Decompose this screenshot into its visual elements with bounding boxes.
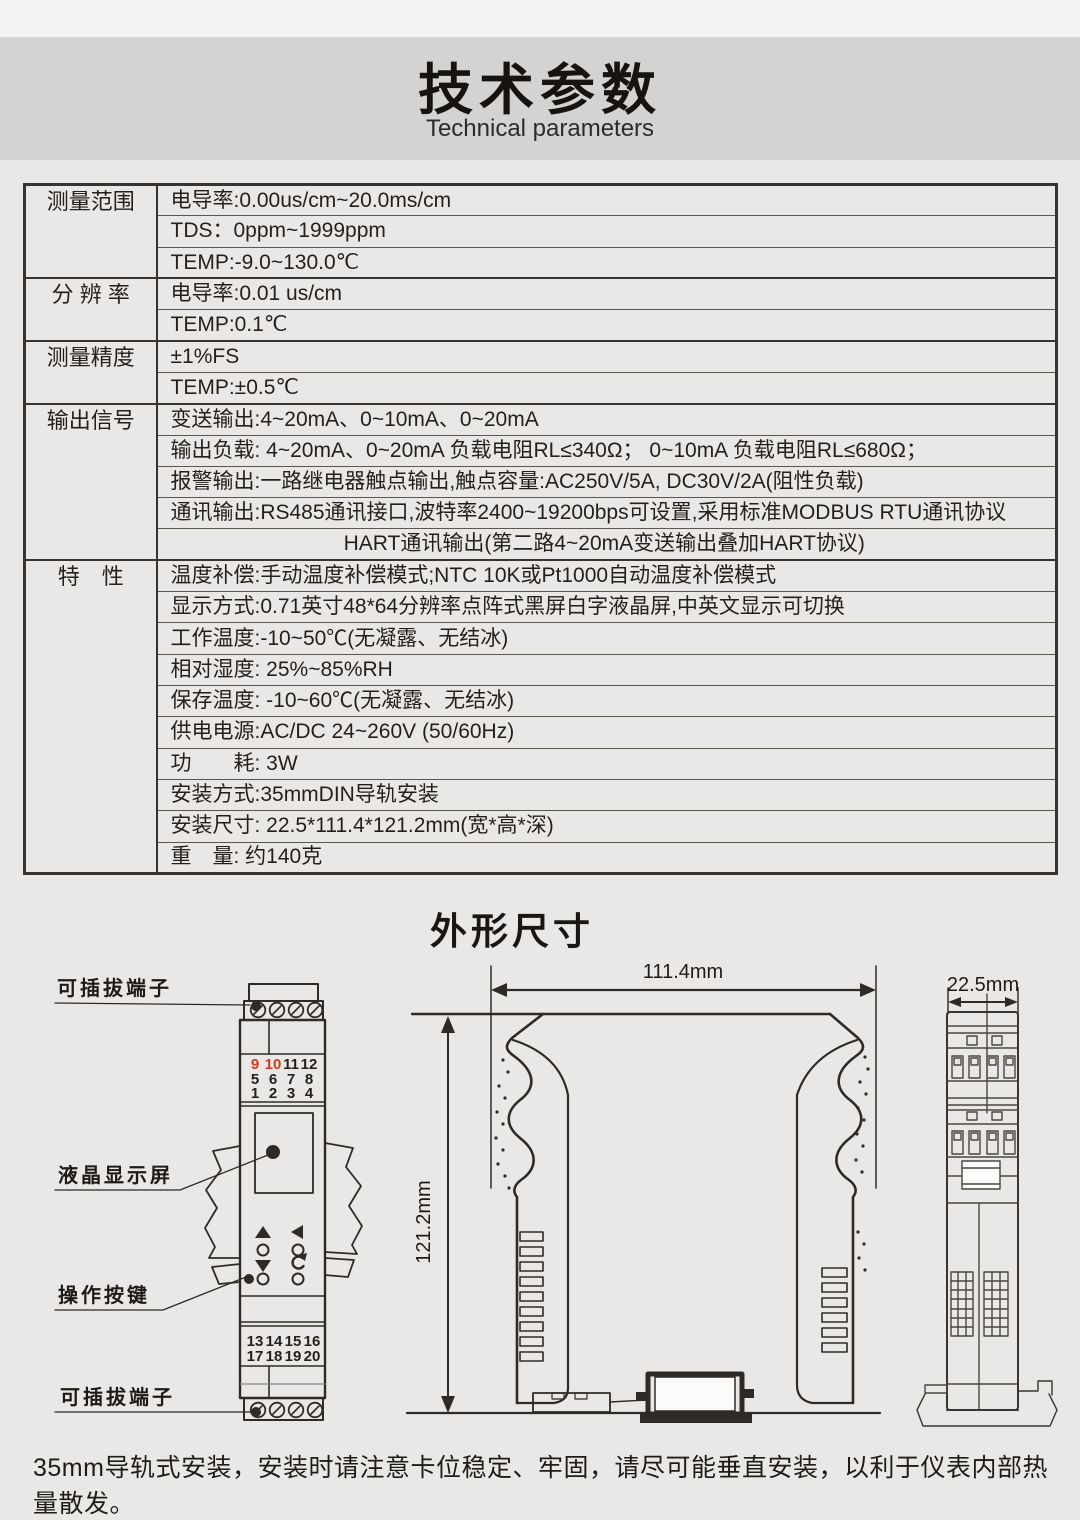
page: { "page": { "title": "技术参数", "subtitle":… — [0, 0, 1080, 1508]
spec-group-label: 测量范围 — [25, 185, 157, 279]
svg-text:3: 3 — [287, 1085, 295, 1102]
callout-terminal-top: 可插拔端子 — [57, 976, 172, 1000]
spec-row-value: 输出负载: 4~20mA、0~20mA 负载电阻RL≤340Ω； 0~10mA … — [157, 435, 1057, 466]
spec-group-label: 特 性 — [25, 560, 157, 873]
din-clip — [636, 1374, 754, 1423]
spec-group-label: 测量精度 — [25, 341, 157, 404]
left-arrow-icon — [291, 1225, 303, 1239]
operation-buttons — [244, 1225, 307, 1285]
spec-row-value: 电导率:0.01 us/cm — [157, 278, 1057, 309]
spec-row-value: 重 量: 约140克 — [157, 842, 1057, 873]
dim-height-label: 121.2mm — [413, 1180, 435, 1263]
spec-group-label: 输出信号 — [25, 404, 157, 561]
svg-text:19: 19 — [285, 1348, 302, 1365]
svg-text:4: 4 — [305, 1085, 314, 1102]
spec-row-value: HART通讯输出(第二路4~20mA变送输出叠加HART协议) — [157, 529, 1057, 560]
spec-row-value: TEMP:±0.5℃ — [157, 372, 1057, 403]
spec-row-value: 报警输出:一路继电器触点输出,触点容量:AC250V/5A, DC30V/2A(… — [157, 466, 1057, 497]
spec-row-value: 安装方式:35mmDIN导轨安装 — [157, 779, 1057, 810]
screw-terminal-icon — [251, 1003, 323, 1018]
terminal-numbers-bottom: 13 14 15 16 17 18 19 20 — [247, 1333, 321, 1365]
spec-row-value: 相对湿度: 25%~85%RH — [157, 654, 1057, 685]
spec-table: 测量范围 电导率:0.00us/cm~20.0ms/cm TDS：0ppm~19… — [23, 183, 1058, 875]
svg-text:17: 17 — [247, 1348, 264, 1365]
terminal-numbers-top: 9 10 11 12 5 6 7 8 1 2 3 4 — [251, 1056, 318, 1102]
up-arrow-icon — [255, 1226, 271, 1238]
top-strip — [0, 0, 1080, 37]
spec-row-value: 通讯输出:RS485通讯接口,波特率2400~19200bps可设置,采用标准M… — [157, 498, 1057, 529]
spec-row-value: ±1%FS — [157, 341, 1057, 372]
dimension-drawings: 9 10 11 12 5 6 7 8 1 2 3 4 — [0, 955, 1080, 1435]
screw-terminal-icon — [251, 1403, 323, 1418]
spec-row-value: TEMP:0.1℃ — [157, 310, 1057, 341]
svg-text:1: 1 — [251, 1085, 259, 1102]
spec-row-value: 工作温度:-10~50℃(无凝露、无结冰) — [157, 623, 1057, 654]
front-view-drawing: 9 10 11 12 5 6 7 8 1 2 3 4 — [55, 976, 362, 1420]
page-title: 技术参数 — [0, 45, 1080, 125]
spec-row-value: 电导率:0.00us/cm~20.0ms/cm — [157, 185, 1057, 216]
spec-row-value: 变送输出:4~20mA、0~10mA、0~20mA — [157, 404, 1057, 435]
dimensions-section-title: 外形尺寸 — [372, 901, 652, 955]
dotted-clip-marks — [854, 1055, 869, 1271]
dim-width-label: 111.4mm — [643, 961, 723, 983]
spec-row-value: 功 耗: 3W — [157, 748, 1057, 779]
mounting-note: 35mm导轨式安装，安装时请注意卡位稳定、牢固，请尽可能垂直安装，以利于仪表内部… — [33, 1448, 1063, 1520]
svg-text:2: 2 — [269, 1085, 277, 1102]
callout-lines — [55, 1003, 268, 1412]
down-arrow-icon — [255, 1260, 271, 1272]
svg-text:20: 20 — [304, 1348, 321, 1365]
dim-depth-label: 22.5mm — [947, 974, 1019, 996]
lcd-screen — [255, 1113, 313, 1193]
spec-row-value: 温度补偿:手动温度补偿模式;NTC 10K或Pt1000自动温度补偿模式 — [157, 560, 1057, 591]
top-view-drawing: 22.5mm — [917, 974, 1057, 1426]
spec-row-value: 安装尺寸: 22.5*111.4*121.2mm(宽*高*深) — [157, 811, 1057, 842]
callout-terminal-bottom: 可插拔端子 — [60, 1385, 175, 1409]
spec-row-value: 供电电源:AC/DC 24~260V (50/60Hz) — [157, 717, 1057, 748]
svg-text:18: 18 — [266, 1348, 283, 1365]
callout-keys: 操作按键 — [58, 1283, 150, 1307]
callout-lcd: 液晶显示屏 — [58, 1163, 173, 1187]
spec-row-value: 显示方式:0.71英寸48*64分辨率点阵式黑屏白字液晶屏,中英文显示可切换 — [157, 592, 1057, 623]
page-subtitle: Technical parameters — [0, 115, 1080, 143]
spec-group-label: 分 辨 率 — [25, 278, 157, 341]
spec-row-value: 保存温度: -10~60℃(无凝露、无结冰) — [157, 686, 1057, 717]
spec-row-value: TEMP:-9.0~130.0℃ — [157, 247, 1057, 278]
return-arrow-icon — [293, 1257, 304, 1269]
spec-row-value: TDS：0ppm~1999ppm — [157, 216, 1057, 247]
profile-view-drawing: 111.4mm 121.2mm — [407, 961, 880, 1423]
